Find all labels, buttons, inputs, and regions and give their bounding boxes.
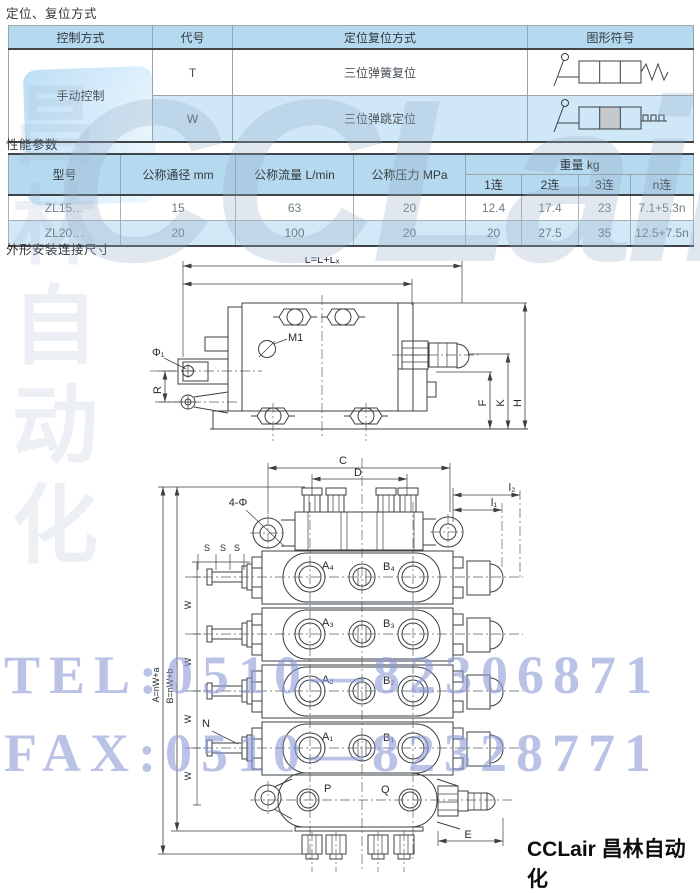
cell-weight-1: 12.4 <box>466 195 522 221</box>
cell-method-T: 三位弹簧复位 <box>233 49 528 96</box>
performance-header-row-1: 型号 公称通径 mm 公称流量 L/min 公称压力 MPa 重量 kg <box>9 154 694 175</box>
port-label-b1: B₁ <box>383 732 394 744</box>
label-w4: W <box>183 771 193 780</box>
spool-end-assembly <box>398 303 469 411</box>
header-weight-2: 2连 <box>522 175 579 196</box>
label-q: Q <box>381 784 390 796</box>
label-l2: l₂ <box>509 482 516 494</box>
label-phi1: Φ₁ <box>152 347 165 359</box>
cell-symbol-W <box>528 96 694 143</box>
header-symbol: 图形符号 <box>528 26 694 50</box>
cell-diameter: 20 <box>121 221 236 247</box>
cell-weight-3: 23 <box>579 195 631 221</box>
cell-control-method: 手动控制 <box>9 49 153 142</box>
valve-sections: A₄ B₄ A₃ B₃ A₂ B₂ A₁ B₁ <box>185 551 523 775</box>
cell-model: ZL15… <box>9 195 121 221</box>
bottom-bolts <box>302 831 414 872</box>
manual-lever-icon <box>554 54 579 87</box>
relief-valve-fitting <box>437 779 495 829</box>
label-b-total: B=nW+b <box>165 668 175 703</box>
top-mounting-plate: 4-Φ <box>229 488 466 551</box>
port-label-b3: B₃ <box>383 618 395 630</box>
cell-code-W: W <box>153 96 233 143</box>
valve-bank-top-view-drawing: C D 4-Φ l₂ l₁ A₄ B₄ A₃ B₃ A₂ B₂ A₁ B₁ <box>0 450 700 874</box>
cell-code-T: T <box>153 49 233 96</box>
dimension-lines: L=L+Lₓ <box>183 257 462 357</box>
label-s1: S <box>204 543 210 553</box>
control-table: 控制方式 代号 定位复位方式 图形符号 手动控制 T 三位弹簧复位 <box>8 25 694 143</box>
label-p: P <box>324 783 331 795</box>
table-row-zl15: ZL15… 15 63 20 12.4 17.4 23 7.1+5.3n <box>9 195 694 221</box>
footer-brand: CCLair 昌林自动化 <box>527 833 700 893</box>
label-m1: M1 <box>288 332 303 344</box>
label-w3: W <box>183 714 193 723</box>
cell-symbol-T <box>528 49 694 96</box>
vertical-centerlines <box>310 458 413 870</box>
detent-symbol <box>551 97 671 137</box>
three-position-valve-icon <box>579 61 641 83</box>
label-w2: W <box>183 657 193 666</box>
label-a-total: A=nW+a <box>151 667 161 702</box>
row-T: 手动控制 T 三位弹簧复位 <box>9 49 694 96</box>
spring-return-symbol <box>551 51 671 91</box>
section-title-dimensions: 外形安装连接尺寸 <box>6 239 110 258</box>
performance-table: 型号 公称通径 mm 公称流量 L/min 公称压力 MPa 重量 kg 1连 … <box>8 153 694 247</box>
cell-flow: 100 <box>236 221 354 247</box>
cell-weight-n: 7.1+5.3n <box>631 195 694 221</box>
label-n: N <box>202 718 210 730</box>
label-d: D <box>354 467 362 479</box>
label-l1: l₁ <box>491 497 497 509</box>
valve-body-side <box>205 303 528 429</box>
header-weight-3: 3连 <box>579 175 631 196</box>
port-label-a4: A₄ <box>322 560 334 572</box>
header-flow: 公称流量 L/min <box>236 154 354 195</box>
table-row-zl20: ZL20… 20 100 20 20 27.5 35 12.5+7.5n <box>9 221 694 247</box>
label-f: F <box>477 399 489 406</box>
section-title-performance: 性能参数 <box>6 134 58 153</box>
section-title-positioning: 定位、复位方式 <box>6 3 97 22</box>
header-pressure: 公称压力 MPa <box>354 154 466 195</box>
spring-icon <box>641 64 668 80</box>
header-diameter: 公称通径 mm <box>121 154 236 195</box>
port-label-a2: A₂ <box>322 674 334 686</box>
header-code: 代号 <box>153 26 233 50</box>
header-model: 型号 <box>9 154 121 195</box>
cell-pressure: 20 <box>354 221 466 247</box>
header-weight-n: n连 <box>631 175 694 196</box>
dimension-r: R <box>152 371 180 402</box>
port-label-b4: B₄ <box>383 561 395 573</box>
header-weight-1: 1连 <box>466 175 522 196</box>
inlet-section: P Q <box>250 773 513 831</box>
label-w1: W <box>183 600 193 609</box>
header-weight-group: 重量 kg <box>466 154 694 175</box>
manual-lever-icon <box>554 100 579 133</box>
label-e: E <box>464 829 471 841</box>
cell-weight-3: 35 <box>579 221 631 247</box>
cell-flow: 63 <box>236 195 354 221</box>
header-reset-method: 定位复位方式 <box>233 26 528 50</box>
m1-port: M1 <box>259 332 304 358</box>
dimension-e: E <box>438 818 503 846</box>
label-r: R <box>152 386 164 394</box>
label-s3: S <box>234 543 240 553</box>
dimension-cd: C D <box>268 455 450 514</box>
port-label-a3: A₃ <box>322 617 334 629</box>
port-label-b2: B₂ <box>383 675 395 687</box>
label-h: H <box>512 399 524 407</box>
dimension-fkh: F K H <box>413 303 527 429</box>
label-k: K <box>495 399 507 407</box>
label-s2: S <box>220 543 226 553</box>
control-table-header-row: 控制方式 代号 定位复位方式 图形符号 <box>9 26 694 50</box>
port-label-a1: A₁ <box>322 731 333 743</box>
cell-method-W: 三位弹跳定位 <box>233 96 528 143</box>
cell-pressure: 20 <box>354 195 466 221</box>
label-4phi: 4-Φ <box>229 497 248 509</box>
label-c: C <box>339 455 347 467</box>
cell-weight-2: 27.5 <box>522 221 579 247</box>
cell-weight-1: 20 <box>466 221 522 247</box>
left-dimensions: S S S W W W W A=nW+a B=nW+b N <box>151 487 305 854</box>
valve-side-view-drawing: L=L+Lₓ M1 Φ₁ R <box>0 257 700 450</box>
header-control-method: 控制方式 <box>9 26 153 50</box>
hinge-joint <box>181 392 228 413</box>
cell-weight-2: 17.4 <box>522 195 579 221</box>
lever-bracket: Φ₁ <box>152 347 228 384</box>
cell-weight-n: 12.5+7.5n <box>631 221 694 247</box>
three-position-valve-icon <box>579 107 641 129</box>
detent-icon <box>641 115 667 121</box>
dim-label-total-length: L=L+Lₓ <box>305 257 340 266</box>
cell-diameter: 15 <box>121 195 236 221</box>
